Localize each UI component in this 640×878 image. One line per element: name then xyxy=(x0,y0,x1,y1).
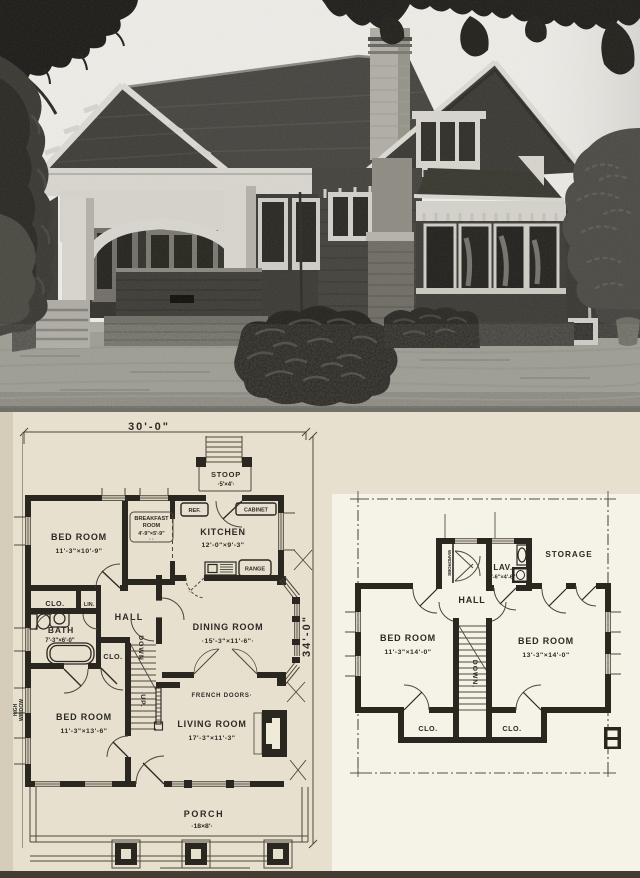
svg-text:12'-0"×9'-3": 12'-0"×9'-3" xyxy=(201,542,244,549)
svg-text:CLO.: CLO. xyxy=(502,724,521,733)
svg-text:HALL: HALL xyxy=(115,612,144,622)
svg-text:BED ROOM: BED ROOM xyxy=(518,636,574,646)
svg-text:BREAKFAST: BREAKFAST xyxy=(134,516,169,522)
svg-text:WARDROBE: WARDROBE xyxy=(447,550,452,576)
svg-text:13'-3"×14'-0": 13'-3"×14'-0" xyxy=(522,652,569,659)
svg-text:34'-0": 34'-0" xyxy=(301,615,313,657)
svg-text:ROOM: ROOM xyxy=(143,523,161,529)
svg-text:CLO.: CLO. xyxy=(103,652,122,661)
svg-text:BED ROOM: BED ROOM xyxy=(56,712,112,722)
svg-text:STORAGE: STORAGE xyxy=(545,550,592,559)
svg-text:BATH: BATH xyxy=(48,625,74,635)
svg-text:11'-3"×13'-6": 11'-3"×13'-6" xyxy=(61,728,108,735)
svg-text:FRENCH DOORS·: FRENCH DOORS· xyxy=(191,693,252,699)
svg-text:·5'×4'·: ·5'×4'· xyxy=(217,482,234,488)
svg-text:17'-3"×11'-3": 17'-3"×11'-3" xyxy=(189,735,236,742)
svg-text:11'-3"×14'-0": 11'-3"×14'-0" xyxy=(385,649,432,656)
svg-text:CABINET: CABINET xyxy=(244,508,269,514)
svg-text:DINING ROOM: DINING ROOM xyxy=(193,622,264,632)
svg-text:BED ROOM: BED ROOM xyxy=(380,633,436,643)
svg-text:KITCHEN: KITCHEN xyxy=(200,527,246,537)
svg-text:·15'-3"×11'-6"·: ·15'-3"×11'-6"· xyxy=(202,638,255,645)
svg-text:4'-6"×4'-6": 4'-6"×4'-6" xyxy=(488,575,516,581)
svg-text:LIVING ROOM: LIVING ROOM xyxy=(177,719,246,729)
svg-text:PORCH: PORCH xyxy=(184,809,225,819)
svg-text:CLO.: CLO. xyxy=(45,599,64,608)
svg-text:STOOP: STOOP xyxy=(211,470,241,479)
svg-text:BED ROOM: BED ROOM xyxy=(51,532,107,542)
svg-text:DOWN,: DOWN, xyxy=(471,660,478,688)
svg-text:· ·: · · xyxy=(149,537,154,543)
svg-text:WINDOW: WINDOW xyxy=(19,699,25,721)
svg-text:RANGE: RANGE xyxy=(245,567,265,573)
svg-text:30'-0": 30'-0" xyxy=(128,421,170,433)
svg-text:DOWN: DOWN xyxy=(137,635,144,661)
svg-text:REF.: REF. xyxy=(188,508,201,514)
svg-text:·18×8'·: ·18×8'· xyxy=(191,823,212,830)
svg-text:HALL: HALL xyxy=(458,595,485,605)
svg-text:11'-3"×10'-9": 11'-3"×10'-9" xyxy=(56,548,103,555)
svg-text:CLO.: CLO. xyxy=(418,724,437,733)
svg-text:LIN.: LIN. xyxy=(84,602,95,608)
svg-text:LAV.: LAV. xyxy=(493,563,512,572)
svg-text:UP.: UP. xyxy=(139,694,146,707)
